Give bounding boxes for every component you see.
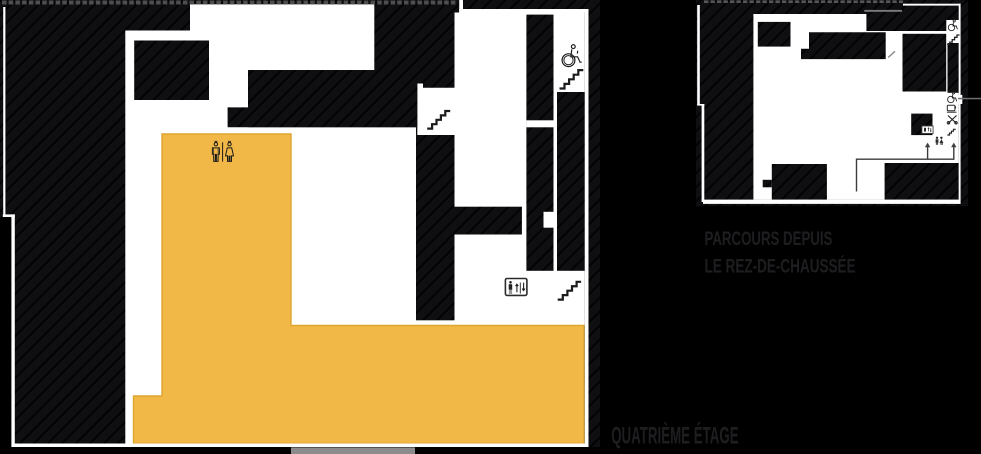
svg-text:PARCOURS DEPUIS: PARCOURS DEPUIS xyxy=(705,229,833,250)
svg-text:QUATRIÈME ÉTAGE: QUATRIÈME ÉTAGE xyxy=(611,422,738,450)
svg-text:LE REZ-DE-CHAUSSÉE: LE REZ-DE-CHAUSSÉE xyxy=(705,255,856,278)
